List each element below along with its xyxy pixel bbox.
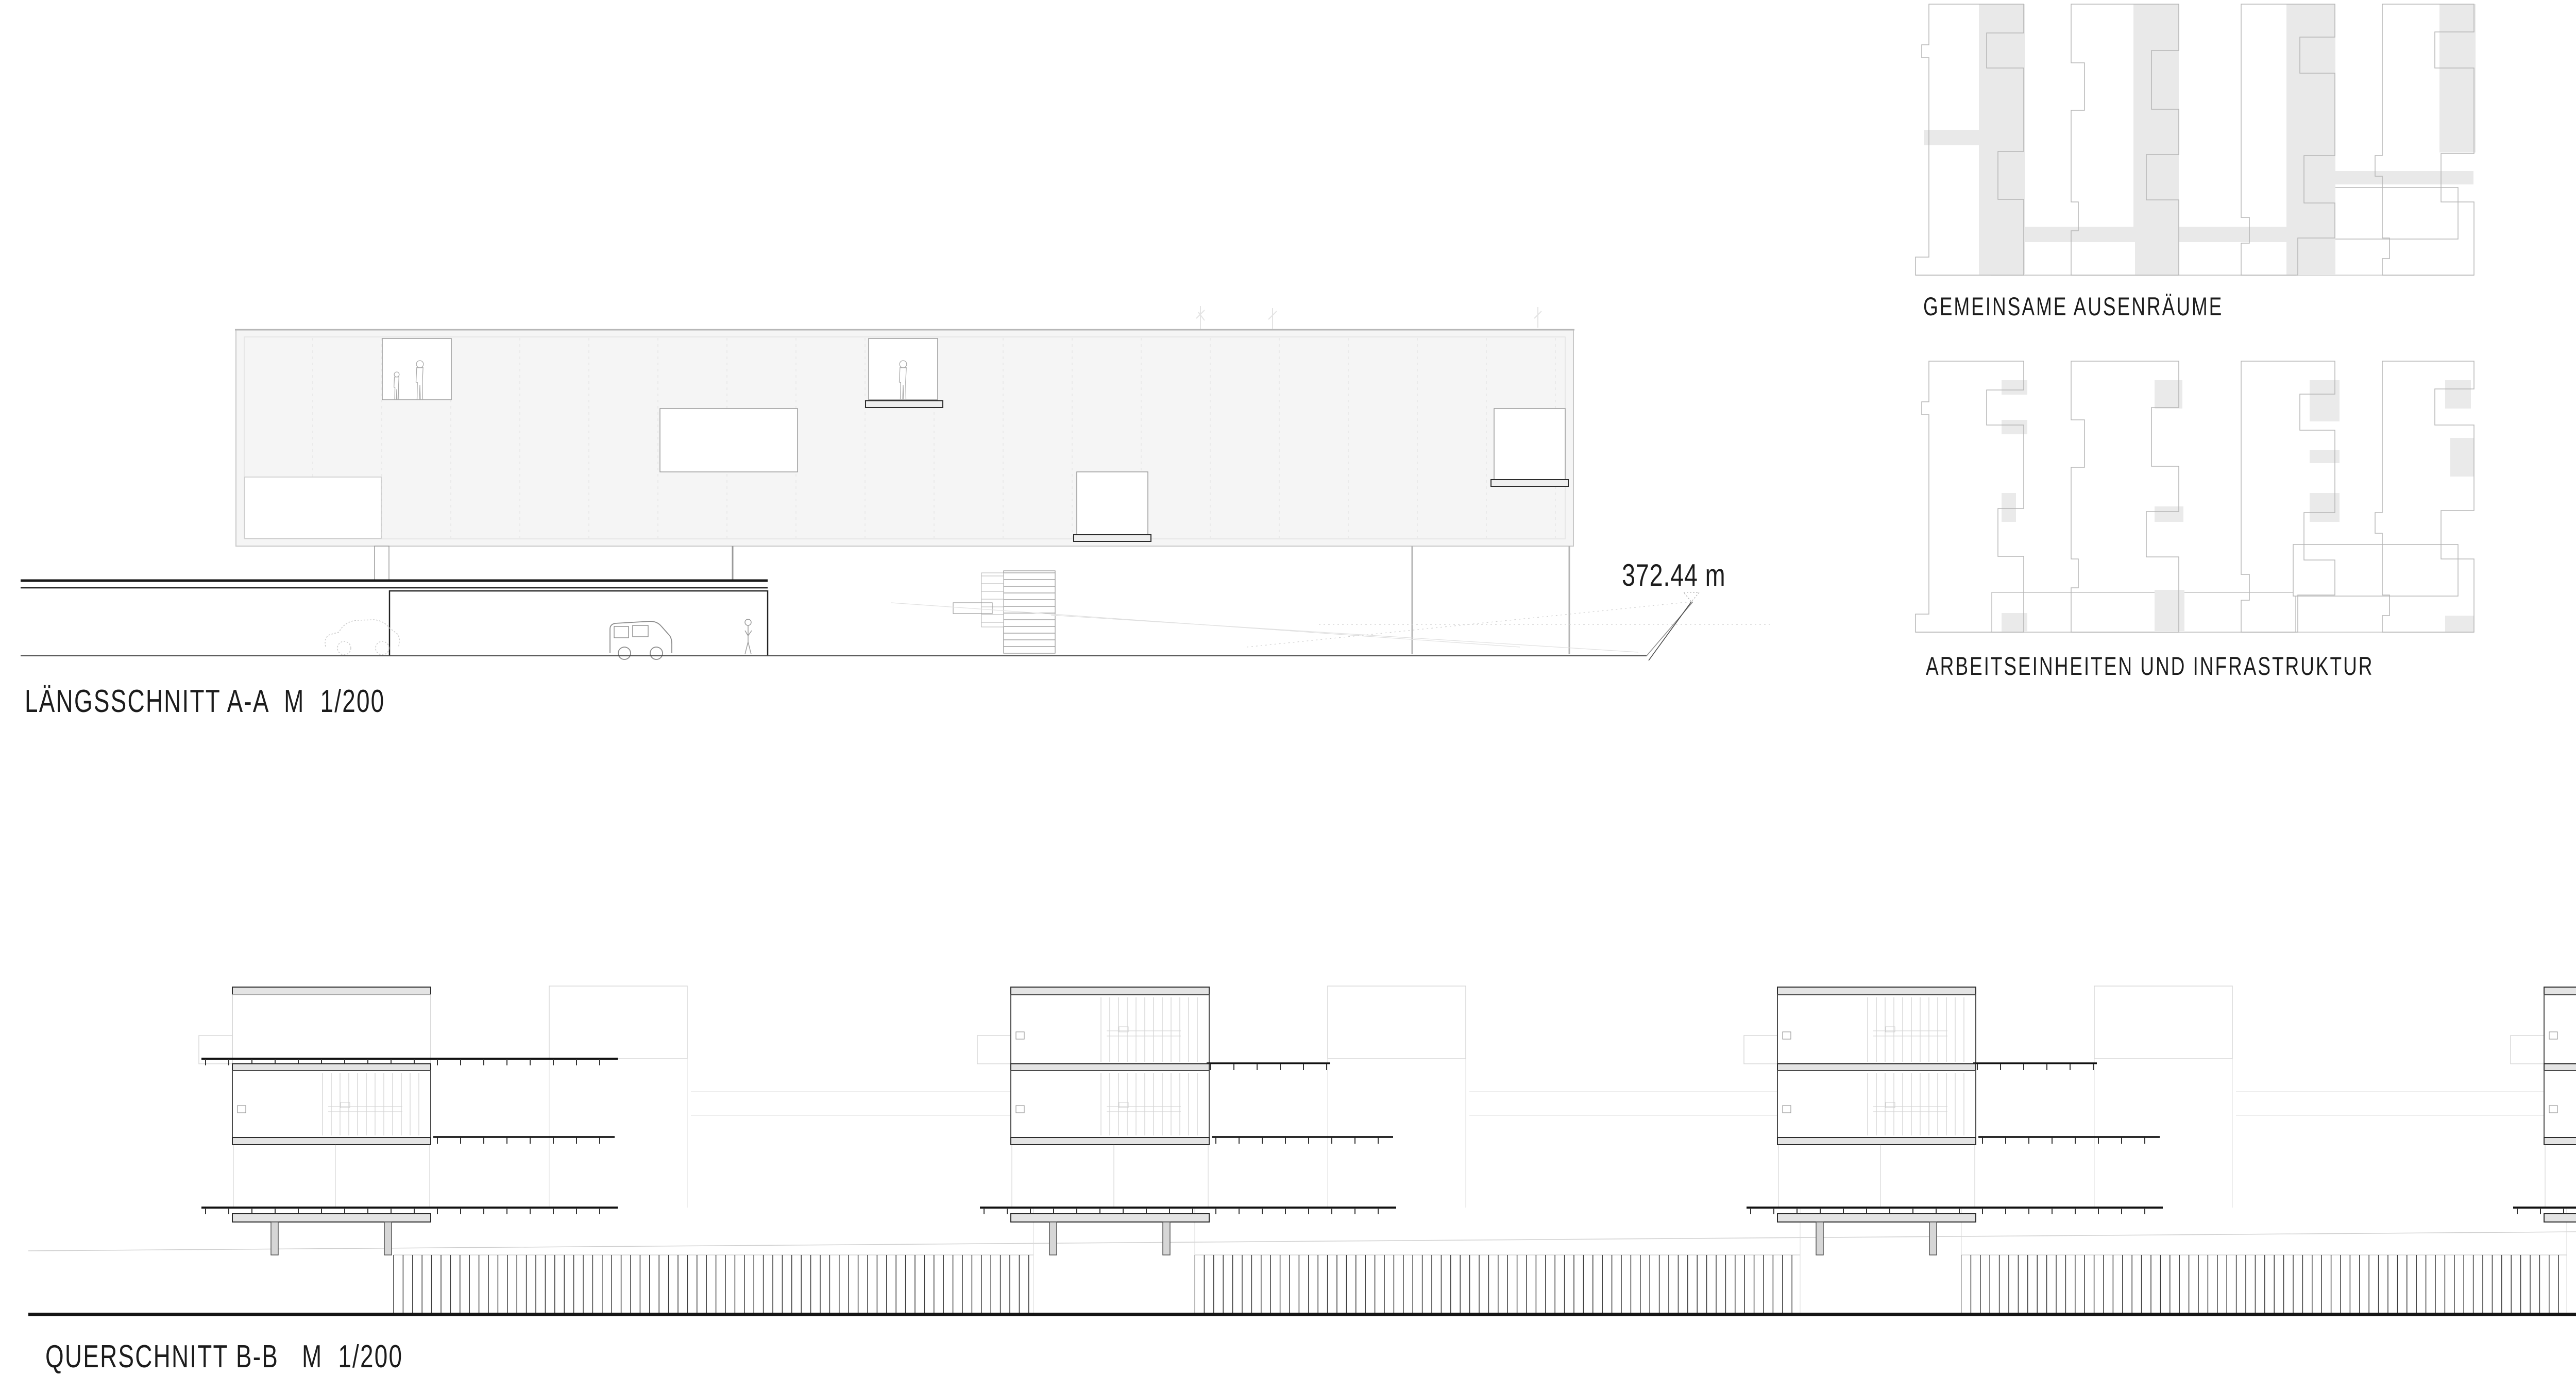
plan-arbeitseinheiten-und-infrastruktur [1916, 361, 2474, 632]
laengsschnitt-section-drawing [21, 306, 1772, 660]
querschnitt-title: QUERSCHNITT B-B M 1/200 [45, 1338, 403, 1375]
querschnitt-section-drawing [28, 986, 2576, 1316]
building-block-3 [1744, 986, 2232, 1255]
van-outline-icon [610, 621, 672, 659]
terrain-lines [21, 602, 1772, 656]
laengsschnitt-title: LÄNGSSCHNITT A-A M 1/200 [25, 683, 385, 720]
garage-cut [389, 591, 768, 655]
building-block-2 [977, 986, 1466, 1255]
sheet-drawing-canvas [0, 0, 2576, 1374]
building-block-1 [199, 986, 687, 1255]
building-block-4 [2511, 986, 2576, 1255]
elevation-annotation: 372.44 m [1622, 557, 1725, 593]
pedestrian-icon [745, 619, 752, 654]
car-outline-icon [325, 620, 399, 655]
tree-sketch-icon [1196, 306, 1541, 330]
stair-section [953, 571, 1055, 653]
retaining-wall-hatch [394, 1209, 2576, 1313]
architectural-sheet: { "sheet": { "background": "#ffffff", "t… [0, 0, 2576, 1374]
elevation-marker-icon [1649, 592, 1699, 660]
plan-label-gemeinsame-ausenraeume: GEMEINSAME AUSENRÄUME [1923, 292, 2223, 321]
access-ramp [21, 581, 768, 588]
plan-label-arbeitseinheiten: ARBEITSEINHEITEN UND INFRASTRUKTUR [1926, 651, 2374, 681]
plan-gemeinsame-ausenraeume [1916, 4, 2476, 275]
ground-line [28, 1226, 2576, 1316]
